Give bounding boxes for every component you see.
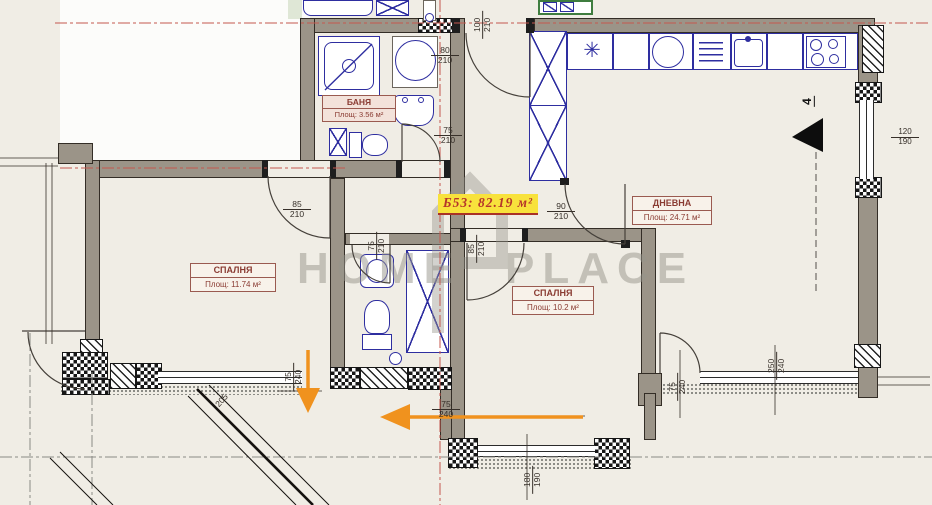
column-hatch [862, 25, 884, 73]
dim-right-window: 120190 [891, 128, 919, 147]
wall [644, 393, 656, 440]
unit-area-label: Б53: 82.19 м² [438, 194, 538, 215]
door-jamb [262, 160, 268, 178]
insulation-band [658, 383, 860, 395]
washing-machine-icon [395, 40, 436, 81]
burner-icon [829, 54, 839, 64]
column-hatch [360, 367, 408, 389]
balcony-arrow-left [380, 404, 583, 430]
shower-head-icon [342, 59, 356, 73]
wall [534, 18, 875, 33]
wall [858, 366, 878, 398]
column-hatch [330, 367, 360, 389]
column-hatch [110, 363, 136, 389]
toilet-tank-icon [349, 132, 362, 158]
wall [300, 18, 315, 178]
neighbor-tile-icon [560, 2, 574, 12]
fan-symbol-icon: ✳ [576, 36, 608, 66]
room-area: Площ: 11.74 м² [191, 278, 275, 291]
room-name: СПАЛНЯ [191, 264, 275, 278]
neighbor-unit-area [60, 0, 310, 162]
wall [58, 143, 93, 164]
room-name: БАНЯ [323, 96, 395, 109]
door-jamb [526, 18, 534, 33]
door-jamb [560, 178, 569, 185]
door-jamb [452, 18, 460, 33]
duct-icon [329, 128, 347, 156]
counter-divider [692, 34, 694, 69]
room-area: Площ: 10.2 м² [513, 301, 593, 314]
column-hatch [855, 177, 882, 198]
dim-bedroom2-door: 85210 [467, 235, 487, 263]
wall [858, 179, 878, 369]
dim-bath-door: 75210 [434, 126, 462, 146]
section-marker [792, 118, 823, 292]
door-opening [402, 161, 444, 177]
column-hatch [80, 339, 103, 353]
room-name: ДНЕВНА [633, 197, 711, 211]
room-label-living: ДНЕВНА Площ: 24.71 м² [632, 196, 712, 225]
column-hatch [408, 367, 452, 390]
door-jamb [396, 160, 402, 178]
dim-bath-window: 80210 [431, 46, 459, 66]
toilet-tank-icon [362, 334, 392, 350]
room-name: СПАЛНЯ [513, 287, 593, 301]
counter-divider [802, 34, 804, 69]
dim-bottom-window: 180190 [523, 466, 543, 494]
window [859, 100, 874, 179]
counter-divider [766, 34, 768, 69]
neighbor-knob-icon [425, 13, 434, 22]
dim-balcony-exit: 75240 [432, 400, 460, 420]
axis-dash-lines-gray [0, 333, 932, 505]
balcony-edge-lines [50, 385, 329, 505]
green-tint [288, 0, 302, 19]
shaft-icon [529, 105, 567, 181]
column-hatch [448, 438, 478, 468]
dim-living-door: 90210 [547, 202, 575, 222]
wall [85, 160, 100, 352]
counter-divider [612, 34, 614, 69]
door-jamb [444, 160, 450, 178]
burner-icon [810, 39, 822, 51]
dim-entry-door: 100210 [473, 11, 493, 39]
floor-plan: ✳ HOME PLACE [0, 0, 932, 505]
kitchen-round-sink-icon [652, 36, 684, 68]
faucet-icon [418, 97, 424, 103]
dim-wc-door: 75210 [367, 232, 387, 260]
drainboard-icon [696, 36, 726, 66]
column-hatch [594, 438, 630, 469]
dim-terrace-window: 250240 [767, 352, 787, 380]
dim-terrace-door: 75240 [668, 373, 688, 401]
column-hatch [854, 344, 881, 368]
dim-balcony-door: 75240 [284, 363, 304, 391]
kitchen-sink-icon [734, 39, 763, 67]
room-area: Площ: 3.56 м² [323, 109, 395, 121]
room-label-bedroom2: СПАЛНЯ Площ: 10.2 м² [512, 286, 594, 315]
shaft-icon [529, 31, 567, 106]
counter-divider [648, 34, 650, 69]
room-label-bedroom1: СПАЛНЯ Площ: 11.74 м² [190, 263, 276, 292]
section-marker-label: 4 [800, 96, 815, 107]
neighbor-cabinet-icon [376, 0, 409, 16]
room-area: Площ: 24.71 м² [633, 211, 711, 224]
floor-drain-icon [389, 352, 402, 365]
toilet-bowl-icon [364, 300, 390, 334]
door-opening [268, 161, 330, 177]
room-label-bath: БАНЯ Площ: 3.56 м² [322, 95, 396, 122]
dim-bedroom1-door: 85210 [283, 200, 311, 220]
faucet-icon [402, 97, 408, 103]
column-hatch [62, 352, 108, 379]
burner-icon [828, 39, 838, 49]
window [158, 371, 302, 384]
column-hatch [62, 379, 110, 395]
door-jamb [330, 160, 336, 178]
faucet-icon [745, 36, 751, 42]
door-jamb [522, 228, 528, 242]
neighbor-tile-icon [543, 2, 557, 12]
window [478, 445, 595, 457]
burner-icon [811, 53, 824, 66]
toilet-bowl-icon [362, 134, 388, 156]
door-jamb [460, 228, 466, 242]
neighbor-tub-icon [303, 0, 373, 16]
bath-sink-icon [394, 95, 434, 126]
counter-divider [730, 34, 732, 69]
